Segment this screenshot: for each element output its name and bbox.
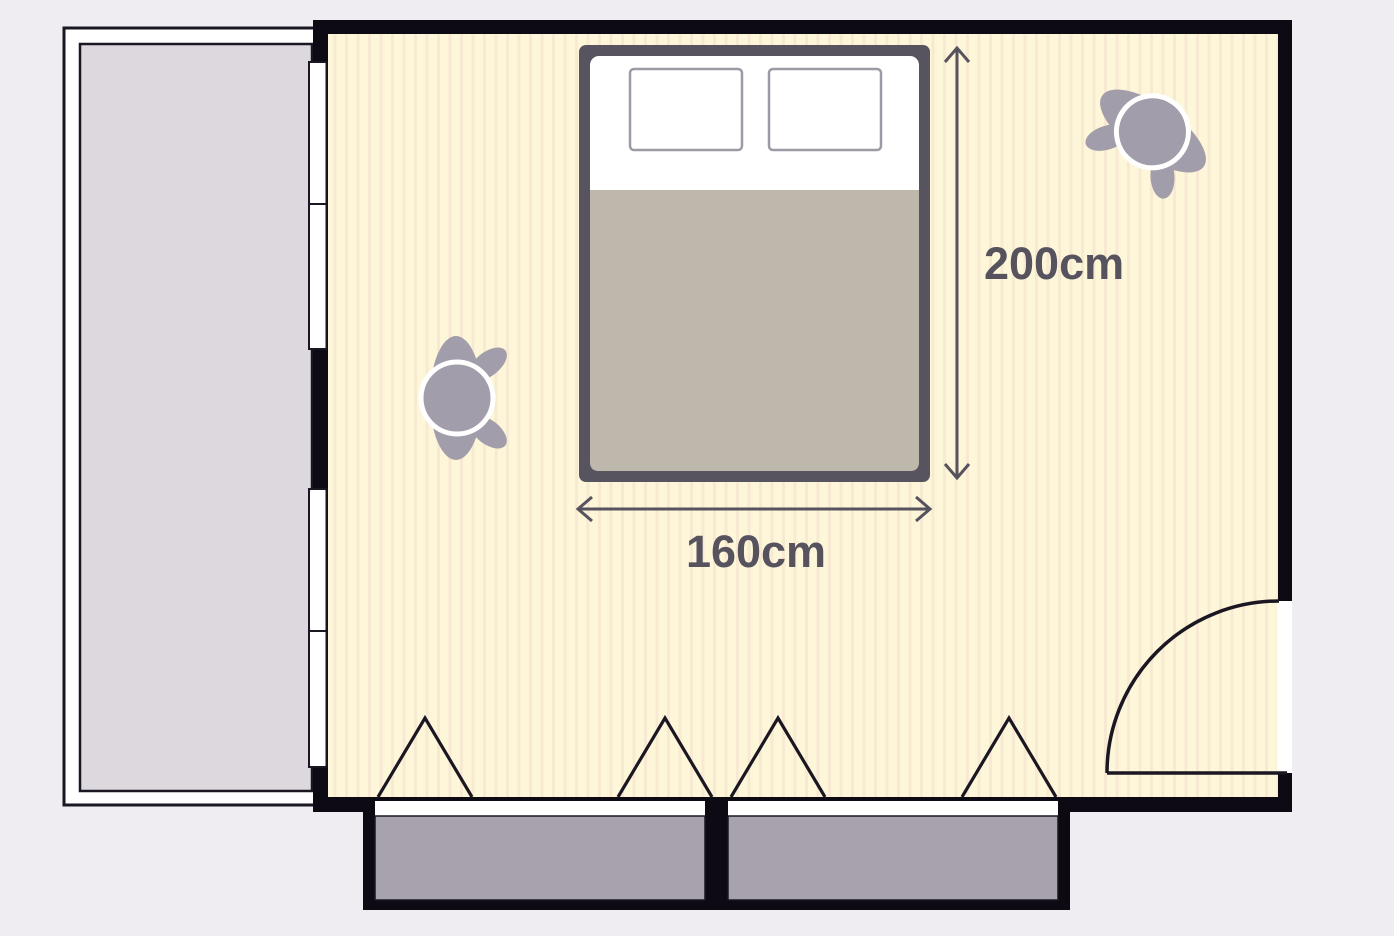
dim-label-bed-width: 160cm [686,526,826,577]
window-upper [309,62,327,349]
pillow-right [769,69,881,150]
wardrobe-left-opening [375,801,705,817]
double-bed [579,45,930,482]
balcony [64,28,320,805]
floor-plan-canvas: 200cm 160cm [0,0,1394,936]
wardrobe-right-body [728,816,1058,900]
pillow-left [630,69,742,150]
door-opening [1277,601,1292,773]
bed-blanket [590,190,919,471]
wardrobe-right [716,797,1070,910]
person-center-head [421,362,493,434]
wardrobe-right-opening [728,801,1058,817]
dim-label-bed-length: 200cm [984,238,1124,289]
balcony-floor [80,44,312,791]
window-lower [309,489,327,767]
wardrobe-left-body [375,816,705,900]
wardrobe-left [363,797,716,910]
floor-plan: 200cm 160cm [0,0,1394,936]
